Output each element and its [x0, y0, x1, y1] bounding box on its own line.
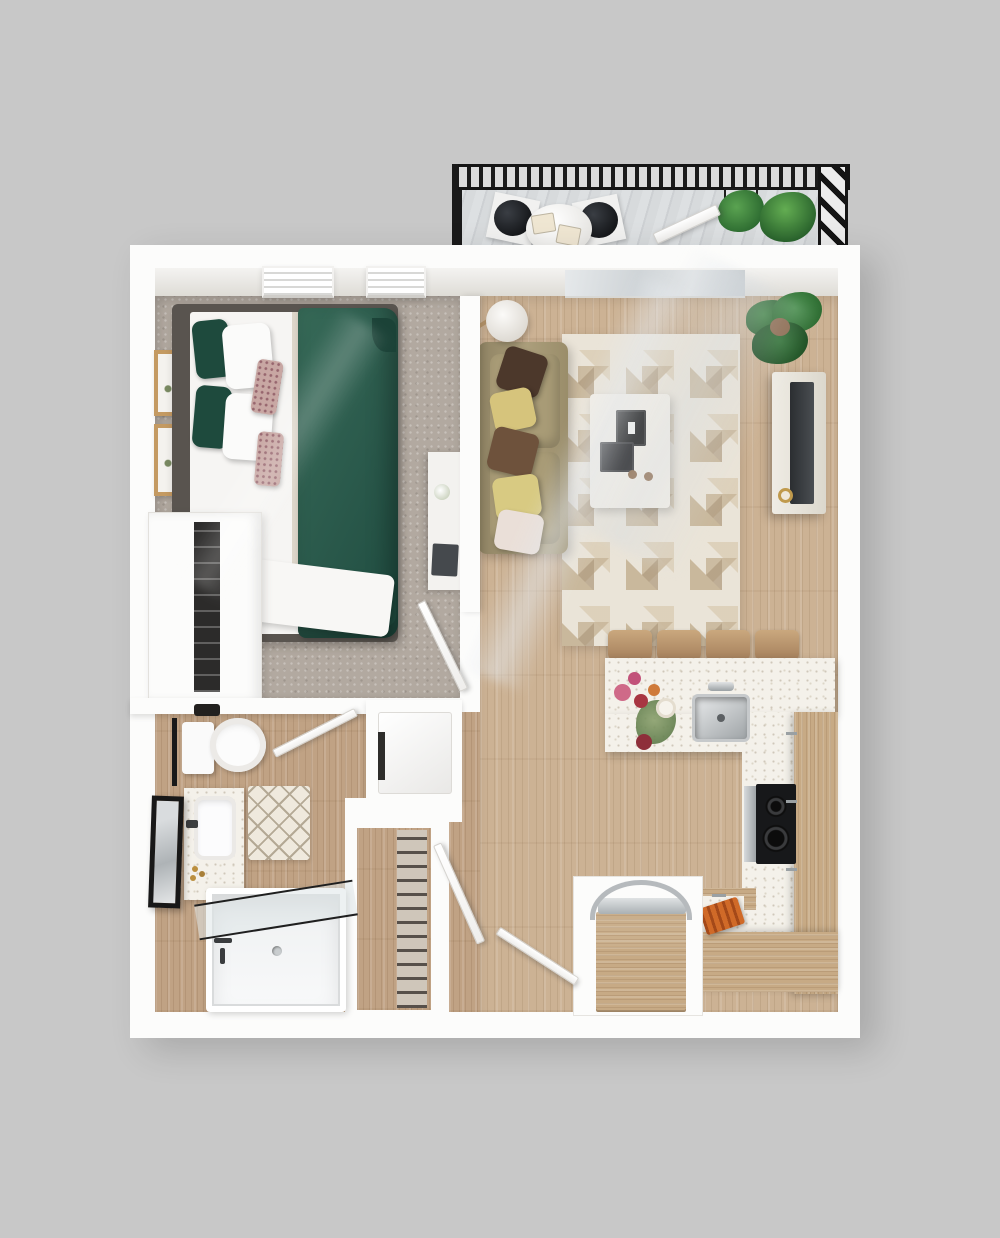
tub-faucet — [214, 938, 232, 943]
bar-stool — [608, 630, 652, 660]
vanity-faucet — [186, 820, 198, 828]
balcony-railing-left-post — [452, 164, 458, 254]
table-setting — [531, 212, 557, 234]
gold-accessory — [192, 866, 198, 872]
balcony-glazing — [565, 270, 745, 298]
coffee-table-knob — [628, 470, 637, 479]
cooktop — [756, 784, 796, 864]
sofa-pillow-blush — [493, 508, 545, 555]
flower-pink — [614, 684, 631, 701]
desk-flowers — [434, 484, 450, 500]
floor-lamp-shade — [486, 300, 528, 342]
washer-door-gap — [378, 732, 385, 780]
toilet-shelf-item — [194, 704, 220, 716]
coffee-table-tray-dot — [628, 422, 635, 434]
bed-pillow-floral — [254, 431, 285, 487]
flower-red — [634, 694, 648, 708]
bedroom-living-divider-wall — [460, 296, 480, 612]
decor-cup-gold — [778, 488, 793, 503]
cabinet-handle — [786, 732, 797, 735]
tub-drain — [272, 946, 282, 956]
sofa-pillow-yellow — [488, 386, 537, 434]
cabinet-handle — [786, 868, 797, 871]
vanity-sink — [194, 796, 236, 860]
balcony-railing-top — [452, 164, 850, 190]
washer — [378, 712, 452, 794]
flower-orange — [648, 684, 660, 696]
wardrobe-open-interior — [194, 522, 220, 692]
table-setting — [555, 224, 581, 247]
floor-plan-render — [0, 0, 1000, 1238]
toilet-bowl — [210, 718, 266, 772]
bedroom-window — [262, 266, 334, 298]
sink-faucet — [708, 682, 734, 691]
plant-pot — [770, 318, 790, 336]
bedroom-window — [366, 266, 426, 298]
towel-bar — [172, 718, 177, 786]
cabinet-handle — [786, 800, 797, 803]
refrigerator — [596, 912, 686, 1012]
oven-steel-edge — [744, 786, 756, 862]
base-cabinet-run — [698, 932, 838, 992]
bath-mat — [248, 786, 310, 860]
sink-drain — [717, 714, 725, 722]
balcony-railing-right — [818, 164, 848, 256]
bar-stool — [706, 630, 750, 660]
coffee-table-book — [600, 442, 634, 472]
tub-faucet-handle — [220, 948, 225, 964]
closet-wire-shelves — [397, 830, 427, 1008]
desk-tablet — [431, 543, 459, 576]
tv-screen — [790, 382, 814, 504]
coffee-table-knob — [644, 472, 653, 481]
flower-magenta — [628, 672, 641, 685]
cabinet-handle — [712, 894, 726, 897]
bar-stool — [657, 630, 701, 660]
flower-plate — [656, 698, 676, 718]
bar-stool — [755, 630, 799, 660]
leaning-mirror — [148, 795, 184, 908]
flower-darkred — [636, 734, 652, 750]
